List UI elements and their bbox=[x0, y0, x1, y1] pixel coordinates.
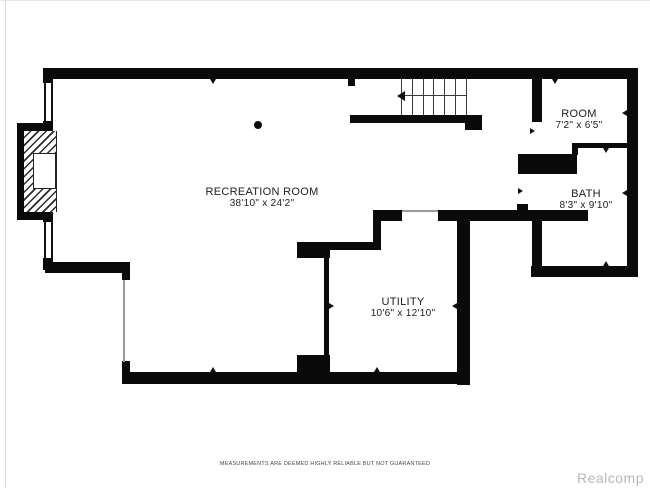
wall-bottom bbox=[122, 372, 470, 384]
tick-bath-bottom bbox=[603, 261, 609, 266]
wall-top bbox=[43, 68, 638, 79]
wall-right bbox=[627, 68, 638, 277]
stair-bottom-wall bbox=[350, 115, 468, 123]
wall-bath-door-stub bbox=[517, 204, 528, 217]
room-label-recreation: RECREATION ROOM 38'10" x 24'2" bbox=[182, 186, 342, 210]
room-dimensions: 38'10" x 24'2" bbox=[182, 198, 342, 210]
wall-bath-bottom bbox=[531, 266, 638, 277]
tick-utility-bottom bbox=[374, 367, 380, 372]
stair-direction-line bbox=[403, 95, 467, 96]
page-edge-top bbox=[0, 0, 650, 1]
room-label-room: ROOM 7'2" x 6'5" bbox=[529, 108, 629, 132]
pier-utility-bottom bbox=[297, 355, 330, 373]
utility-opening-line bbox=[402, 210, 438, 212]
wall-utility-notch-vertical bbox=[373, 210, 381, 244]
room-name: ROOM bbox=[529, 108, 629, 120]
stair-tread bbox=[434, 79, 445, 115]
stair-treads bbox=[401, 79, 467, 115]
tick-rec-top bbox=[210, 79, 216, 84]
room-dimensions: 10'6" x 12'10" bbox=[343, 308, 463, 320]
room-label-utility: UTILITY 10'6" x 12'10" bbox=[343, 296, 463, 320]
fireplace-firebox bbox=[33, 153, 56, 189]
tick-bath-top bbox=[603, 148, 609, 153]
disclaimer-text: MEASUREMENTS ARE DEEMED HIGHLY RELIABLE … bbox=[0, 461, 650, 467]
room-dimensions: 8'3" x 9'10" bbox=[536, 200, 636, 212]
stair-top-stub bbox=[348, 79, 355, 86]
floor-plan: RECREATION ROOM 38'10" x 24'2" UTILITY 1… bbox=[0, 0, 650, 488]
wall-left-upper bbox=[43, 68, 53, 83]
wall-room-bath-block bbox=[518, 154, 577, 174]
wall-left-lower bbox=[43, 258, 53, 270]
wall-utility-notch-horizontal bbox=[323, 242, 381, 250]
window-left-lower bbox=[44, 222, 53, 258]
stair-tread bbox=[456, 79, 467, 115]
fireplace-outer-left bbox=[17, 123, 24, 220]
wall-bath-top-connector bbox=[572, 143, 578, 155]
tick-utility-left bbox=[329, 303, 334, 309]
room-name: BATH bbox=[536, 188, 636, 200]
window-left-upper bbox=[44, 83, 53, 121]
pier-utility-top bbox=[297, 242, 330, 258]
wall-bath-top-thin bbox=[572, 143, 628, 148]
fireplace-outer-bottom bbox=[17, 212, 48, 220]
realcomp-watermark: Realcomp bbox=[577, 470, 644, 486]
wall-rec-step-stub bbox=[122, 267, 130, 280]
support-column-dot bbox=[254, 121, 262, 129]
room-name: RECREATION ROOM bbox=[182, 186, 342, 198]
room-label-bath: BATH 8'3" x 9'10" bbox=[536, 188, 636, 212]
stair-tread bbox=[424, 79, 435, 115]
room-name: UTILITY bbox=[343, 296, 463, 308]
stair-tread bbox=[413, 79, 424, 115]
stair-direction-arrow-icon bbox=[397, 91, 405, 101]
wall-bath-left bbox=[532, 217, 542, 277]
fireplace-outer-top bbox=[17, 123, 48, 131]
rec-room-opening-line bbox=[123, 279, 125, 362]
tick-room-top bbox=[552, 79, 558, 84]
stair-tread bbox=[445, 79, 456, 115]
page-edge-left bbox=[5, 0, 6, 488]
wall-rec-bottom-left bbox=[45, 262, 130, 273]
room-dimensions: 7'2" x 6'5" bbox=[529, 120, 629, 132]
tick-bath-door bbox=[518, 188, 523, 194]
tick-rec-bottom bbox=[210, 367, 216, 372]
wall-utility-left bbox=[324, 250, 329, 372]
wall-bottom-left-stub bbox=[122, 361, 130, 373]
stair-corner-block bbox=[465, 115, 482, 130]
